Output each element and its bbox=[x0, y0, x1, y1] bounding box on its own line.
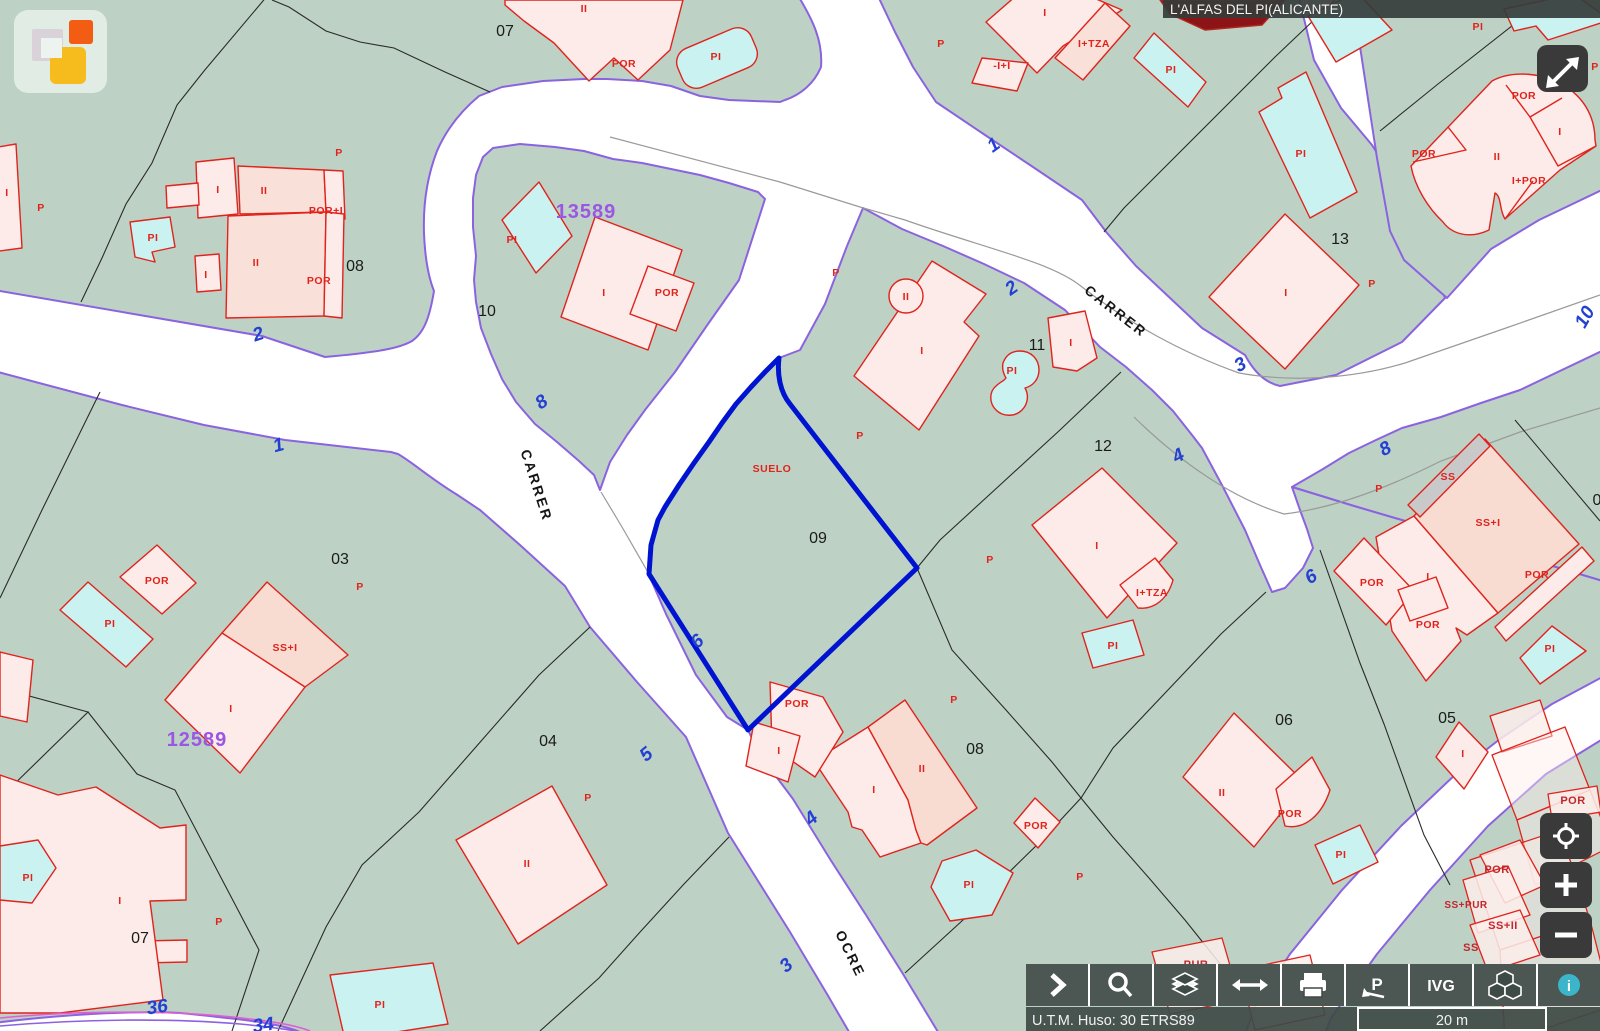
svg-text:P: P bbox=[215, 916, 223, 928]
svg-text:POR: POR bbox=[1416, 619, 1440, 631]
svg-text:P: P bbox=[37, 202, 45, 214]
svg-text:II: II bbox=[919, 763, 926, 775]
svg-text:PI: PI bbox=[507, 234, 518, 246]
svg-text:I: I bbox=[872, 784, 875, 796]
svg-text:I: I bbox=[229, 703, 232, 715]
svg-text:0: 0 bbox=[1593, 492, 1600, 509]
svg-text:34: 34 bbox=[251, 1014, 275, 1031]
svg-text:POR: POR bbox=[307, 275, 331, 287]
svg-text:SS+II: SS+II bbox=[1488, 920, 1518, 932]
svg-text:I: I bbox=[5, 187, 8, 199]
svg-text:PI: PI bbox=[375, 999, 386, 1011]
svg-text:POR: POR bbox=[1360, 577, 1384, 589]
svg-text:12: 12 bbox=[1094, 438, 1112, 455]
svg-text:U.T.M. Huso: 30 ETRS89: U.T.M. Huso: 30 ETRS89 bbox=[1032, 1013, 1195, 1029]
svg-text:PI: PI bbox=[1296, 148, 1307, 160]
svg-text:I: I bbox=[1426, 571, 1429, 583]
svg-text:I+TZA: I+TZA bbox=[1136, 587, 1168, 599]
svg-text:P: P bbox=[937, 38, 945, 50]
svg-text:i: i bbox=[1567, 978, 1571, 995]
svg-text:06: 06 bbox=[1275, 712, 1293, 729]
svg-text:13589: 13589 bbox=[556, 201, 617, 223]
svg-text:PI: PI bbox=[1007, 365, 1018, 377]
svg-text:08: 08 bbox=[346, 258, 364, 275]
svg-text:POR: POR bbox=[612, 58, 636, 70]
svg-text:POR: POR bbox=[1412, 148, 1436, 160]
svg-text:03: 03 bbox=[331, 551, 349, 568]
svg-text:PI: PI bbox=[711, 51, 722, 63]
svg-text:PI: PI bbox=[23, 872, 34, 884]
svg-text:SS: SS bbox=[1463, 942, 1479, 954]
svg-text:II: II bbox=[581, 3, 588, 15]
svg-text:SUELO: SUELO bbox=[753, 463, 792, 475]
svg-text:PI: PI bbox=[1108, 640, 1119, 652]
svg-text:I: I bbox=[1284, 287, 1287, 299]
svg-text:I: I bbox=[1095, 540, 1098, 552]
svg-text:POR: POR bbox=[1560, 795, 1585, 807]
svg-text:L'ALFAS DEL PI(ALICANTE): L'ALFAS DEL PI(ALICANTE) bbox=[1170, 2, 1343, 17]
svg-text:P: P bbox=[856, 430, 864, 442]
svg-text:POR: POR bbox=[1024, 820, 1048, 832]
svg-text:12589: 12589 bbox=[167, 729, 228, 751]
svg-text:PI: PI bbox=[1336, 849, 1347, 861]
svg-text:07: 07 bbox=[131, 930, 149, 947]
svg-text:II: II bbox=[253, 257, 260, 269]
svg-text:I: I bbox=[602, 287, 605, 299]
svg-text:P: P bbox=[1375, 483, 1383, 495]
svg-text:PI: PI bbox=[148, 232, 159, 244]
svg-text:20 m: 20 m bbox=[1436, 1013, 1468, 1029]
svg-text:04: 04 bbox=[539, 733, 557, 750]
svg-text:13: 13 bbox=[1331, 231, 1349, 248]
svg-text:II: II bbox=[1219, 787, 1226, 799]
svg-text:I+TZA: I+TZA bbox=[1078, 38, 1110, 50]
svg-text:I: I bbox=[118, 895, 121, 907]
svg-text:07: 07 bbox=[496, 23, 514, 40]
svg-text:PI: PI bbox=[1473, 21, 1484, 33]
svg-text:11: 11 bbox=[1029, 337, 1046, 354]
svg-text:II: II bbox=[261, 185, 268, 197]
svg-text:I: I bbox=[1558, 126, 1561, 138]
svg-text:I: I bbox=[1461, 748, 1464, 760]
svg-text:POR: POR bbox=[1512, 90, 1536, 102]
svg-text:SS+PUR: SS+PUR bbox=[1444, 900, 1488, 911]
svg-text:PI: PI bbox=[105, 618, 116, 630]
svg-text:POR: POR bbox=[655, 287, 679, 299]
svg-text:I: I bbox=[1069, 337, 1072, 349]
svg-text:POR: POR bbox=[785, 698, 809, 710]
svg-text:PI: PI bbox=[1545, 643, 1556, 655]
svg-text:36: 36 bbox=[145, 996, 169, 1020]
svg-text:P: P bbox=[356, 581, 364, 593]
svg-text:I: I bbox=[777, 745, 780, 757]
svg-text:POR: POR bbox=[145, 575, 169, 587]
svg-text:PI: PI bbox=[964, 879, 975, 891]
svg-text:POR+I: POR+I bbox=[309, 205, 343, 217]
svg-text:I: I bbox=[1043, 7, 1046, 19]
svg-text:10: 10 bbox=[478, 303, 496, 320]
svg-text:P: P bbox=[986, 554, 994, 566]
svg-text:09: 09 bbox=[809, 530, 827, 547]
svg-text:P: P bbox=[1371, 975, 1382, 994]
svg-text:I: I bbox=[216, 184, 219, 196]
svg-text:I: I bbox=[204, 269, 207, 281]
svg-text:PI: PI bbox=[1166, 64, 1177, 76]
svg-text:SS+I: SS+I bbox=[1475, 517, 1500, 529]
svg-text:P: P bbox=[1368, 278, 1376, 290]
svg-text:05: 05 bbox=[1438, 710, 1456, 727]
svg-text:POR: POR bbox=[1484, 864, 1509, 876]
svg-text:08: 08 bbox=[966, 741, 984, 758]
svg-text:P: P bbox=[584, 792, 592, 804]
svg-text:II: II bbox=[903, 291, 910, 303]
svg-text:P: P bbox=[1591, 61, 1599, 73]
svg-text:POR: POR bbox=[1278, 808, 1302, 820]
svg-text:II: II bbox=[1494, 151, 1501, 163]
svg-text:POR: POR bbox=[1525, 569, 1549, 581]
svg-text:II: II bbox=[524, 858, 531, 870]
svg-text:-I+I: -I+I bbox=[993, 60, 1010, 72]
svg-text:SS+I: SS+I bbox=[272, 642, 297, 654]
svg-text:IVG: IVG bbox=[1427, 978, 1455, 995]
svg-text:P: P bbox=[950, 694, 958, 706]
svg-text:P: P bbox=[832, 267, 840, 279]
svg-text:SS: SS bbox=[1440, 471, 1455, 483]
svg-text:P: P bbox=[1076, 871, 1084, 883]
svg-text:P: P bbox=[335, 147, 343, 159]
svg-text:I+POR: I+POR bbox=[1512, 175, 1546, 187]
svg-text:I: I bbox=[920, 345, 923, 357]
